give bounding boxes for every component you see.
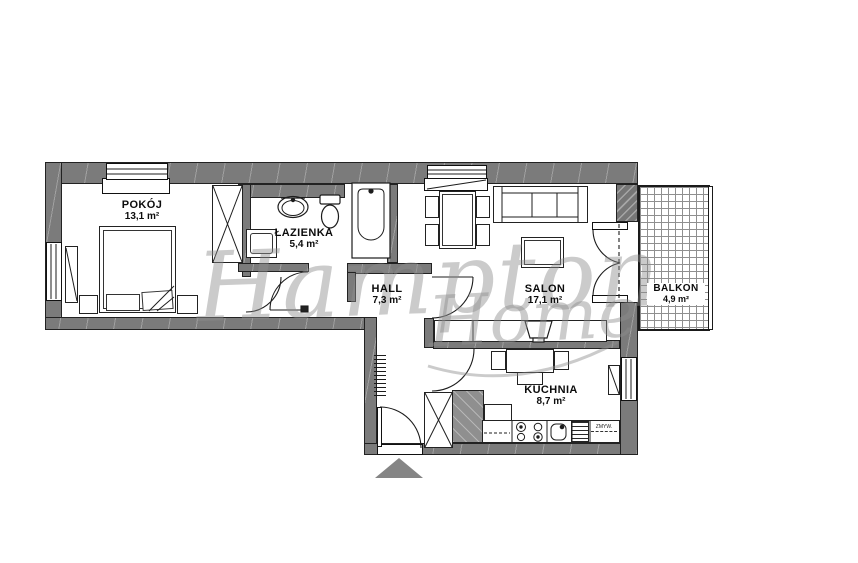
entry-door-leaf [377, 407, 382, 447]
dining-chair-1 [425, 196, 439, 218]
washbasin [278, 197, 308, 218]
coffee-table-top [524, 240, 561, 265]
room-area: 5,4 m² [252, 240, 356, 251]
nightstand-left [79, 295, 98, 314]
window-sill-salon-top [424, 178, 488, 191]
wall-hall-top [347, 263, 432, 274]
balcony-floor [638, 185, 710, 331]
window-pokoj-top [106, 163, 168, 180]
kitchen-chair-right [554, 351, 569, 370]
room-name: BALKON [649, 284, 703, 295]
room-area: 17,1 m² [495, 296, 595, 307]
entry-door-threshold [377, 444, 423, 455]
window-sill-pokoj-top [102, 178, 170, 194]
wall-bottom-upper [45, 317, 377, 330]
room-area: 8,7 m² [501, 397, 601, 408]
room-area: 4,9 m² [649, 295, 703, 304]
room-label-kuchnia: KUCHNIA 8,7 m² [501, 385, 601, 407]
sink-drainer [571, 421, 589, 442]
room-label-pokoj: POKÓJ 13,1 m² [92, 200, 192, 222]
wardrobe-pokoj [212, 185, 243, 263]
kitchen-shaft-block [452, 390, 484, 443]
room-name: HALL [345, 284, 429, 296]
room-area: 13,1 m² [92, 212, 192, 223]
wall-bathroom-bottom [238, 263, 309, 272]
radiator-hall [374, 355, 386, 399]
dishwasher-label: ZMYW. [591, 423, 617, 432]
room-area: 7,3 m² [345, 296, 429, 307]
hall-kitchen-door-arc [432, 349, 474, 391]
room-label-lazienka: ŁAZIENKA 5,4 m² [252, 228, 356, 250]
room-name: SALON [495, 284, 595, 296]
room-name: KUCHNIA [501, 385, 601, 397]
dishwasher-label-text: ZMYW. [596, 424, 612, 430]
pokoj-door-arc [246, 277, 281, 312]
balcony-door-arc-upper [593, 230, 620, 263]
kitchen-chair-left [491, 351, 506, 370]
dining-chair-2 [425, 224, 439, 246]
room-label-balkon: BALKON 4,9 m² [647, 283, 705, 305]
balcony-door-leaf-lower [592, 295, 628, 303]
bed-pillow-left [106, 294, 140, 311]
room-label-salon: SALON 17,1 m² [495, 284, 595, 306]
balcony-door-arc-lower [593, 263, 620, 296]
sofa [493, 186, 588, 223]
room-name: POKÓJ [92, 200, 192, 212]
wall-bathroom-right [387, 184, 398, 263]
window-pokoj-left [46, 242, 62, 301]
entrance-arrow-icon [375, 458, 423, 478]
hall-salon-door-arc [432, 277, 473, 318]
room-label-hall: HALL 7,3 m² [345, 284, 429, 306]
bathtub [352, 183, 390, 258]
radiator-pokoj [65, 246, 78, 303]
nightstand-right [177, 295, 198, 314]
dining-chair-3 [476, 196, 490, 218]
wall-salon-right-corner [616, 184, 638, 222]
balcony-door-leaf-upper [592, 222, 628, 230]
bathroom-door-arc [270, 272, 308, 310]
bar-counter [434, 320, 607, 342]
floor-plan: ZMYW. [0, 0, 858, 563]
dining-chair-4 [476, 224, 490, 246]
toilet [320, 195, 340, 228]
window-kitchen-right [621, 357, 637, 401]
kitchen-table [506, 349, 554, 373]
wall-bathroom-top-thick [238, 184, 345, 198]
entry-wardrobe [424, 392, 453, 448]
radiator-kitchen [608, 365, 620, 395]
bed-pillow-right [141, 290, 173, 311]
room-name: ŁAZIENKA [252, 228, 356, 240]
window-salon-top [427, 165, 487, 179]
dining-table-top [442, 194, 473, 246]
entry-door-arc [380, 407, 421, 448]
balcony-railing [708, 186, 713, 330]
